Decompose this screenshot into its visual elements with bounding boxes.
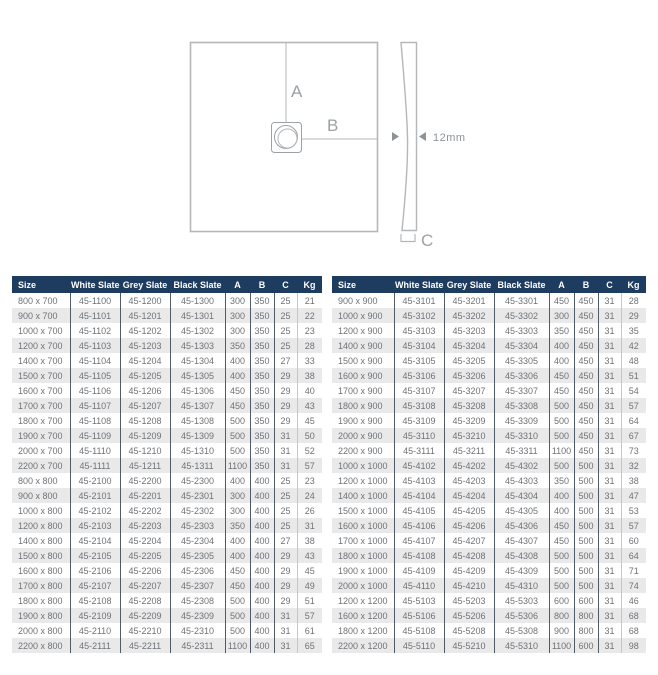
table-cell: 450 bbox=[574, 413, 598, 428]
table-cell: 350 bbox=[250, 383, 274, 398]
table-cell: 38 bbox=[621, 473, 646, 488]
table-cell: 23 bbox=[297, 473, 322, 488]
table-cell: 450 bbox=[574, 308, 598, 323]
table-cell: 45-1106 bbox=[70, 383, 120, 398]
table-cell: 31 bbox=[274, 608, 297, 623]
table-cell: 45-1203 bbox=[120, 338, 170, 353]
table-cell: 350 bbox=[250, 413, 274, 428]
table-cell: 1600 x 1000 bbox=[332, 518, 394, 533]
table-row: 2200 x 80045-211145-221145-2311110040031… bbox=[12, 638, 322, 653]
table-cell: 45-2109 bbox=[70, 608, 120, 623]
table-cell: 1600 x 800 bbox=[12, 563, 70, 578]
table-cell: 98 bbox=[621, 638, 646, 653]
table-cell: 600 bbox=[574, 638, 598, 653]
table-cell: 45-4106 bbox=[394, 518, 444, 533]
table-cell: 45-2307 bbox=[170, 578, 225, 593]
table-cell: 45-3301 bbox=[494, 293, 549, 308]
dimension-b-label: B bbox=[327, 116, 338, 135]
table-cell: 45-5306 bbox=[494, 608, 549, 623]
table-cell: 45-3105 bbox=[394, 353, 444, 368]
table-cell: 25 bbox=[274, 308, 297, 323]
table-cell: 45-2302 bbox=[170, 503, 225, 518]
table-cell: 31 bbox=[598, 383, 621, 398]
table-cell: 45-3107 bbox=[394, 383, 444, 398]
table-cell: 1700 x 700 bbox=[12, 398, 70, 413]
table-cell: 45-1205 bbox=[120, 368, 170, 383]
table-cell: 31 bbox=[274, 638, 297, 653]
table-cell: 400 bbox=[250, 488, 274, 503]
table-cell: 1400 x 900 bbox=[332, 338, 394, 353]
table-cell: 31 bbox=[598, 458, 621, 473]
table-cell: 31 bbox=[598, 428, 621, 443]
table-cell: 31 bbox=[598, 353, 621, 368]
table-cell: 43 bbox=[297, 548, 322, 563]
table-cell: 45-1204 bbox=[120, 353, 170, 368]
table-cell: 400 bbox=[549, 503, 574, 518]
table-cell: 45-3310 bbox=[494, 428, 549, 443]
table-cell: 35 bbox=[621, 323, 646, 338]
table-cell: 45-1108 bbox=[70, 413, 120, 428]
table-cell: 500 bbox=[549, 578, 574, 593]
column-header: Size bbox=[332, 276, 394, 293]
table-cell: 28 bbox=[297, 338, 322, 353]
table-cell: 53 bbox=[621, 503, 646, 518]
table-cell: 45-2303 bbox=[170, 518, 225, 533]
table-cell: 45-5310 bbox=[494, 638, 549, 653]
table-cell: 45-1210 bbox=[120, 443, 170, 458]
table-cell: 350 bbox=[225, 338, 250, 353]
table-cell: 1400 x 800 bbox=[12, 533, 70, 548]
column-header: Size bbox=[12, 276, 70, 293]
table-cell: 45-2105 bbox=[70, 548, 120, 563]
table-cell: 45-3303 bbox=[494, 323, 549, 338]
table-cell: 350 bbox=[250, 398, 274, 413]
table-cell: 31 bbox=[274, 623, 297, 638]
table-cell: 450 bbox=[574, 338, 598, 353]
table-cell: 45-2300 bbox=[170, 473, 225, 488]
table-cell: 450 bbox=[549, 518, 574, 533]
table-cell: 1400 x 700 bbox=[12, 353, 70, 368]
table-cell: 400 bbox=[549, 338, 574, 353]
table-cell: 45-2309 bbox=[170, 608, 225, 623]
table-cell: 350 bbox=[250, 353, 274, 368]
table-cell: 900 x 800 bbox=[12, 488, 70, 503]
table-row: 1900 x 80045-210945-220945-2309500400315… bbox=[12, 608, 322, 623]
table-cell: 1100 bbox=[225, 458, 250, 473]
table-cell: 500 bbox=[549, 398, 574, 413]
table-cell: 350 bbox=[250, 368, 274, 383]
table-row: 1600 x 90045-310645-320645-3306450450315… bbox=[332, 368, 646, 383]
table-row: 1200 x 90045-310345-320345-3303350450313… bbox=[332, 323, 646, 338]
table-cell: 31 bbox=[274, 443, 297, 458]
spec-sheet-page: A B 12mm C SizeWhite SlateGrey SlateBlac… bbox=[0, 0, 658, 675]
table-cell: 45-2209 bbox=[120, 608, 170, 623]
table-cell: 29 bbox=[621, 308, 646, 323]
table-cell: 29 bbox=[274, 563, 297, 578]
table-cell: 38 bbox=[297, 368, 322, 383]
table-cell: 32 bbox=[621, 458, 646, 473]
table-cell: 50 bbox=[297, 428, 322, 443]
table-cell: 1200 x 800 bbox=[12, 518, 70, 533]
table-cell: 51 bbox=[621, 368, 646, 383]
table-cell: 45-1302 bbox=[170, 323, 225, 338]
table-cell: 52 bbox=[297, 443, 322, 458]
table-cell: 1900 x 700 bbox=[12, 428, 70, 443]
table-row: 1600 x 80045-210645-220645-2306450400294… bbox=[12, 563, 322, 578]
table-row: 1900 x 100045-410945-420945-430950050031… bbox=[332, 563, 646, 578]
table-cell: 45-4310 bbox=[494, 578, 549, 593]
table-row: 2000 x 80045-211045-221045-2310500400316… bbox=[12, 623, 322, 638]
table-cell: 61 bbox=[297, 623, 322, 638]
table-cell: 1400 x 1000 bbox=[332, 488, 394, 503]
table-cell: 31 bbox=[598, 533, 621, 548]
table-cell: 400 bbox=[225, 473, 250, 488]
table-cell: 350 bbox=[250, 323, 274, 338]
table-cell: 45-1309 bbox=[170, 428, 225, 443]
table-cell: 400 bbox=[225, 368, 250, 383]
table-row: 2200 x 90045-311145-321145-3311110045031… bbox=[332, 443, 646, 458]
table-cell: 1000 x 700 bbox=[12, 323, 70, 338]
table-row: 800 x 80045-210045-220045-23004004002523 bbox=[12, 473, 322, 488]
column-header: White Slate bbox=[70, 276, 120, 293]
table-cell: 1500 x 700 bbox=[12, 368, 70, 383]
table-cell: 45-3308 bbox=[494, 398, 549, 413]
table-cell: 45-4103 bbox=[394, 473, 444, 488]
table-cell: 45-1107 bbox=[70, 398, 120, 413]
table-cell: 24 bbox=[297, 488, 322, 503]
table-row: 1900 x 70045-110945-120945-1309500350315… bbox=[12, 428, 322, 443]
table-cell: 400 bbox=[250, 608, 274, 623]
table-cell: 450 bbox=[549, 533, 574, 548]
table-cell: 45-2100 bbox=[70, 473, 120, 488]
table-cell: 45-1308 bbox=[170, 413, 225, 428]
table-cell: 45-2304 bbox=[170, 533, 225, 548]
table-row: 1900 x 90045-310945-320945-3309500450316… bbox=[332, 413, 646, 428]
table-cell: 45-2102 bbox=[70, 503, 120, 518]
table-cell: 45-1211 bbox=[120, 458, 170, 473]
table-cell: 45-4207 bbox=[444, 533, 494, 548]
table-cell: 23 bbox=[297, 323, 322, 338]
table-cell: 45-1110 bbox=[70, 443, 120, 458]
table-cell: 1000 x 1000 bbox=[332, 458, 394, 473]
table-cell: 45-3205 bbox=[444, 353, 494, 368]
thickness-arrow-left-icon bbox=[392, 132, 399, 141]
table-cell: 45-5206 bbox=[444, 608, 494, 623]
table-cell: 1100 bbox=[549, 638, 574, 653]
table-cell: 2000 x 900 bbox=[332, 428, 394, 443]
table-cell: 400 bbox=[225, 548, 250, 563]
table-row: 1700 x 90045-310745-320745-3307450450315… bbox=[332, 383, 646, 398]
table-cell: 26 bbox=[297, 503, 322, 518]
table-cell: 67 bbox=[621, 428, 646, 443]
dimension-c-bracket bbox=[401, 234, 415, 242]
column-header: Grey Slate bbox=[444, 276, 494, 293]
table-cell: 400 bbox=[250, 503, 274, 518]
table-cell: 45-2108 bbox=[70, 593, 120, 608]
table-cell: 450 bbox=[225, 383, 250, 398]
table-cell: 28 bbox=[621, 293, 646, 308]
table-cell: 51 bbox=[297, 593, 322, 608]
table-cell: 31 bbox=[598, 563, 621, 578]
table-cell: 2200 x 1200 bbox=[332, 638, 394, 653]
table-cell: 45-3206 bbox=[444, 368, 494, 383]
table-cell: 25 bbox=[274, 338, 297, 353]
table-cell: 45-4303 bbox=[494, 473, 549, 488]
table-cell: 45-5303 bbox=[494, 593, 549, 608]
table-row: 800 x 70045-110045-120045-13003003502521 bbox=[12, 293, 322, 308]
table-cell: 600 bbox=[549, 593, 574, 608]
table-cell: 45-4302 bbox=[494, 458, 549, 473]
table-cell: 400 bbox=[250, 533, 274, 548]
table-cell: 2000 x 700 bbox=[12, 443, 70, 458]
table-cell: 45-3104 bbox=[394, 338, 444, 353]
table-cell: 45-2104 bbox=[70, 533, 120, 548]
table-cell: 45-1100 bbox=[70, 293, 120, 308]
table-cell: 900 x 900 bbox=[332, 293, 394, 308]
table-cell: 45-1201 bbox=[120, 308, 170, 323]
table-cell: 45-1206 bbox=[120, 383, 170, 398]
table-cell: 1800 x 700 bbox=[12, 413, 70, 428]
table-cell: 450 bbox=[574, 383, 598, 398]
table-cell: 45-3202 bbox=[444, 308, 494, 323]
table-cell: 45-2306 bbox=[170, 563, 225, 578]
table-row: 1800 x 120045-510845-520845-530890080031… bbox=[332, 623, 646, 638]
table-cell: 45-1301 bbox=[170, 308, 225, 323]
table-cell: 500 bbox=[574, 518, 598, 533]
table-cell: 45-3211 bbox=[444, 443, 494, 458]
table-row: 1000 x 80045-210245-220245-2302300400252… bbox=[12, 503, 322, 518]
table-cell: 350 bbox=[250, 308, 274, 323]
table-cell: 33 bbox=[297, 353, 322, 368]
table-cell: 450 bbox=[574, 323, 598, 338]
table-cell: 43 bbox=[297, 398, 322, 413]
table-cell: 800 x 700 bbox=[12, 293, 70, 308]
table-cell: 45-4110 bbox=[394, 578, 444, 593]
table-cell: 2200 x 900 bbox=[332, 443, 394, 458]
table-cell: 1000 x 900 bbox=[332, 308, 394, 323]
table-cell: 45-2200 bbox=[120, 473, 170, 488]
table-cell: 45-1307 bbox=[170, 398, 225, 413]
table-cell: 74 bbox=[621, 578, 646, 593]
column-header: A bbox=[225, 276, 250, 293]
table-cell: 45-2211 bbox=[120, 638, 170, 653]
table-cell: 45-1306 bbox=[170, 383, 225, 398]
table-cell: 500 bbox=[574, 503, 598, 518]
table-cell: 25 bbox=[274, 503, 297, 518]
table-cell: 31 bbox=[598, 368, 621, 383]
column-header: B bbox=[250, 276, 274, 293]
table-cell: 57 bbox=[621, 518, 646, 533]
table-cell: 29 bbox=[274, 593, 297, 608]
table-cell: 450 bbox=[574, 443, 598, 458]
table-cell: 31 bbox=[297, 518, 322, 533]
table-cell: 45-3207 bbox=[444, 383, 494, 398]
table-cell: 45-3306 bbox=[494, 368, 549, 383]
table-cell: 400 bbox=[225, 533, 250, 548]
table-cell: 42 bbox=[621, 338, 646, 353]
table-cell: 45-3111 bbox=[394, 443, 444, 458]
table-row: 900 x 80045-210145-220145-23013004002524 bbox=[12, 488, 322, 503]
table-cell: 45-3106 bbox=[394, 368, 444, 383]
table-cell: 45-1208 bbox=[120, 413, 170, 428]
table-cell: 1500 x 900 bbox=[332, 353, 394, 368]
table-cell: 300 bbox=[225, 323, 250, 338]
table-cell: 45-1303 bbox=[170, 338, 225, 353]
table-cell: 25 bbox=[274, 323, 297, 338]
table-cell: 450 bbox=[574, 353, 598, 368]
table-cell: 64 bbox=[621, 413, 646, 428]
table-row: 1800 x 70045-110845-120845-1308500350294… bbox=[12, 413, 322, 428]
table-cell: 31 bbox=[598, 308, 621, 323]
table-cell: 350 bbox=[250, 293, 274, 308]
table-cell: 31 bbox=[598, 623, 621, 638]
table-header-row: SizeWhite SlateGrey SlateBlack SlateABCK… bbox=[332, 276, 646, 293]
table-cell: 65 bbox=[297, 638, 322, 653]
table-cell: 500 bbox=[225, 608, 250, 623]
table-cell: 45-2204 bbox=[120, 533, 170, 548]
table-header-row: SizeWhite SlateGrey SlateBlack SlateABCK… bbox=[12, 276, 322, 293]
table-cell: 45-3101 bbox=[394, 293, 444, 308]
table-cell: 1700 x 800 bbox=[12, 578, 70, 593]
table-row: 1500 x 80045-210545-220545-2305400400294… bbox=[12, 548, 322, 563]
table-cell: 45-2101 bbox=[70, 488, 120, 503]
size-table-left: SizeWhite SlateGrey SlateBlack SlateABCK… bbox=[12, 276, 322, 653]
table-cell: 45-1103 bbox=[70, 338, 120, 353]
table-cell: 500 bbox=[225, 428, 250, 443]
table-cell: 800 bbox=[574, 608, 598, 623]
table-cell: 71 bbox=[621, 563, 646, 578]
table-cell: 1200 x 1200 bbox=[332, 593, 394, 608]
table-row: 1500 x 100045-410545-420545-430540050031… bbox=[332, 503, 646, 518]
table-cell: 45-2103 bbox=[70, 518, 120, 533]
table-cell: 1600 x 700 bbox=[12, 383, 70, 398]
table-cell: 45-3302 bbox=[494, 308, 549, 323]
table-row: 1400 x 100045-410445-420445-430440050031… bbox=[332, 488, 646, 503]
table-row: 2200 x 120045-511045-521045-531011006003… bbox=[332, 638, 646, 653]
size-table-right: SizeWhite SlateGrey SlateBlack SlateABCK… bbox=[332, 276, 646, 653]
table-cell: 1600 x 1200 bbox=[332, 608, 394, 623]
table-row: 1600 x 120045-510645-520645-530680080031… bbox=[332, 608, 646, 623]
table-cell: 45-4105 bbox=[394, 503, 444, 518]
table-cell: 45-4205 bbox=[444, 503, 494, 518]
table-cell: 1700 x 900 bbox=[332, 383, 394, 398]
table-cell: 29 bbox=[274, 578, 297, 593]
column-header: Grey Slate bbox=[120, 276, 170, 293]
table-cell: 45-4306 bbox=[494, 518, 549, 533]
table-cell: 45-4305 bbox=[494, 503, 549, 518]
table-cell: 45 bbox=[297, 563, 322, 578]
column-header: A bbox=[549, 276, 574, 293]
table-cell: 400 bbox=[225, 353, 250, 368]
table-cell: 31 bbox=[598, 503, 621, 518]
table-cell: 45-4206 bbox=[444, 518, 494, 533]
table-cell: 45-3108 bbox=[394, 398, 444, 413]
table-cell: 450 bbox=[574, 368, 598, 383]
table-cell: 29 bbox=[274, 368, 297, 383]
table-cell: 500 bbox=[574, 563, 598, 578]
table-cell: 350 bbox=[225, 518, 250, 533]
table-cell: 300 bbox=[225, 308, 250, 323]
table-cell: 350 bbox=[250, 428, 274, 443]
table-row: 1800 x 80045-210845-220845-2308500400295… bbox=[12, 593, 322, 608]
table-row: 1700 x 70045-110745-120745-1307450350294… bbox=[12, 398, 322, 413]
table-cell: 25 bbox=[274, 293, 297, 308]
table-cell: 450 bbox=[574, 428, 598, 443]
table-cell: 45-2308 bbox=[170, 593, 225, 608]
table-cell: 45-1209 bbox=[120, 428, 170, 443]
table-cell: 29 bbox=[274, 413, 297, 428]
table-cell: 500 bbox=[225, 593, 250, 608]
table-cell: 400 bbox=[250, 548, 274, 563]
table-cell: 500 bbox=[225, 623, 250, 638]
table-cell: 27 bbox=[274, 533, 297, 548]
table-cell: 45-3110 bbox=[394, 428, 444, 443]
table-row: 1500 x 90045-310545-320545-3305400450314… bbox=[332, 353, 646, 368]
table-cell: 1500 x 1000 bbox=[332, 503, 394, 518]
table-cell: 64 bbox=[621, 548, 646, 563]
table-cell: 54 bbox=[621, 383, 646, 398]
table-row: 900 x 70045-110145-120145-13013003502522 bbox=[12, 308, 322, 323]
table-cell: 350 bbox=[549, 323, 574, 338]
table-cell: 45-3204 bbox=[444, 338, 494, 353]
table-cell: 1200 x 1000 bbox=[332, 473, 394, 488]
table-cell: 57 bbox=[621, 398, 646, 413]
thickness-label: 12mm bbox=[433, 132, 466, 144]
table-cell: 45-2301 bbox=[170, 488, 225, 503]
table-cell: 45-4304 bbox=[494, 488, 549, 503]
table-cell: 45-4309 bbox=[494, 563, 549, 578]
table-cell: 500 bbox=[574, 458, 598, 473]
table-cell: 45-5210 bbox=[444, 638, 494, 653]
table-row: 1200 x 70045-110345-120345-1303350350252… bbox=[12, 338, 322, 353]
table-cell: 45-4203 bbox=[444, 473, 494, 488]
table-cell: 400 bbox=[250, 578, 274, 593]
table-cell: 45-1200 bbox=[120, 293, 170, 308]
table-cell: 25 bbox=[274, 488, 297, 503]
table-cell: 500 bbox=[225, 413, 250, 428]
table-cell: 1800 x 900 bbox=[332, 398, 394, 413]
table-cell: 45-2205 bbox=[120, 548, 170, 563]
table-cell: 45-4202 bbox=[444, 458, 494, 473]
table-cell: 45-3209 bbox=[444, 413, 494, 428]
table-cell: 400 bbox=[549, 488, 574, 503]
table-cell: 45-4109 bbox=[394, 563, 444, 578]
table-row: 1600 x 70045-110645-120645-1306450350294… bbox=[12, 383, 322, 398]
table-cell: 45-4104 bbox=[394, 488, 444, 503]
table-cell: 45-1305 bbox=[170, 368, 225, 383]
shower-tray-diagram: A B 12mm C bbox=[0, 0, 658, 270]
table-cell: 31 bbox=[598, 548, 621, 563]
table-cell: 57 bbox=[297, 608, 322, 623]
table-row: 1400 x 70045-110445-120445-1304400350273… bbox=[12, 353, 322, 368]
table-cell: 25 bbox=[274, 518, 297, 533]
table-cell: 45 bbox=[297, 413, 322, 428]
table-cell: 31 bbox=[598, 638, 621, 653]
table-cell: 45-4108 bbox=[394, 548, 444, 563]
table-row: 1200 x 80045-210345-220345-2303350400253… bbox=[12, 518, 322, 533]
table-cell: 500 bbox=[574, 578, 598, 593]
table-row: 1000 x 90045-310245-320245-3302300450312… bbox=[332, 308, 646, 323]
column-header: C bbox=[274, 276, 297, 293]
table-cell: 45-4208 bbox=[444, 548, 494, 563]
table-cell: 400 bbox=[250, 593, 274, 608]
table-cell: 500 bbox=[549, 428, 574, 443]
table-cell: 400 bbox=[250, 623, 274, 638]
table-cell: 31 bbox=[598, 518, 621, 533]
table-cell: 450 bbox=[549, 383, 574, 398]
table-cell: 500 bbox=[549, 548, 574, 563]
table-cell: 300 bbox=[549, 308, 574, 323]
